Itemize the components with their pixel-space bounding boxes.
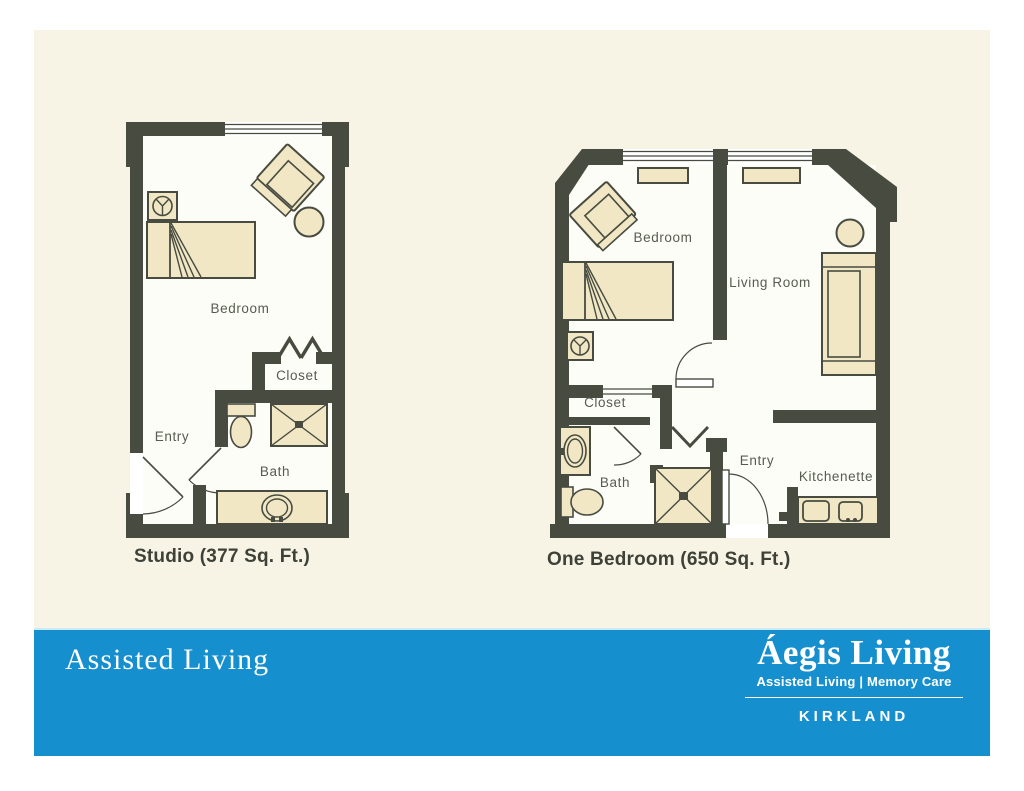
one-bedroom-bath-label: Bath [600,475,630,490]
vanity-sink-icon [217,491,327,524]
studio-window [225,122,322,136]
footer-band: Assisted Living Áegis Living Assisted Li… [34,628,990,756]
bed-icon [562,262,673,320]
shower-icon [655,468,712,524]
studio-bedroom-label: Bedroom [211,301,270,316]
sofa-icon [822,253,876,375]
studio-caption: Studio (377 Sq. Ft.) [134,546,310,568]
one-bedroom-window-left [623,149,713,165]
footer-heading: Assisted Living [65,643,269,677]
one-bedroom-bedroom-label: Bedroom [634,230,693,245]
kitchenette-counter-icon [798,497,878,524]
round-table-icon [837,220,864,247]
dresser-icon [743,168,800,183]
shower-icon [271,404,327,446]
studio-bath-label: Bath [260,464,290,479]
nightstand-icon [567,332,593,360]
logo-location: KIRKLAND [734,708,974,725]
one-bedroom-floorplan: Bedroom Living Room Closet Bath Entry Ki… [540,140,905,580]
kitchenette-label: Kitchenette [799,469,873,484]
logo-title: Áegis Living [734,635,974,670]
vanity-sink-icon [559,427,590,475]
bed-icon [147,222,255,278]
flyer-canvas: Bedroom Closet Entry Bath [0,0,1024,791]
side-table-icon [295,208,324,237]
aegis-living-logo: Áegis Living Assisted Living | Memory Ca… [734,635,974,725]
studio-closet-label: Closet [276,368,318,383]
logo-divider-line [745,697,963,698]
closet-bottom-wall [562,417,650,425]
nightstand-icon [148,192,177,220]
hall-wall [773,410,890,423]
living-room-label: Living Room [729,275,811,290]
one-bedroom-entry-label: Entry [740,453,775,468]
one-bedroom-window-right [728,149,812,165]
logo-tagline: Assisted Living | Memory Care [734,674,974,689]
studio-floorplan: Bedroom Closet Entry Bath [125,110,355,580]
studio-entry-label: Entry [155,429,190,444]
toilet-icon [561,487,603,517]
one-bedroom-closet-label: Closet [584,395,626,410]
dresser-icon [638,168,688,183]
one-bedroom-caption: One Bedroom (650 Sq. Ft.) [547,549,791,571]
